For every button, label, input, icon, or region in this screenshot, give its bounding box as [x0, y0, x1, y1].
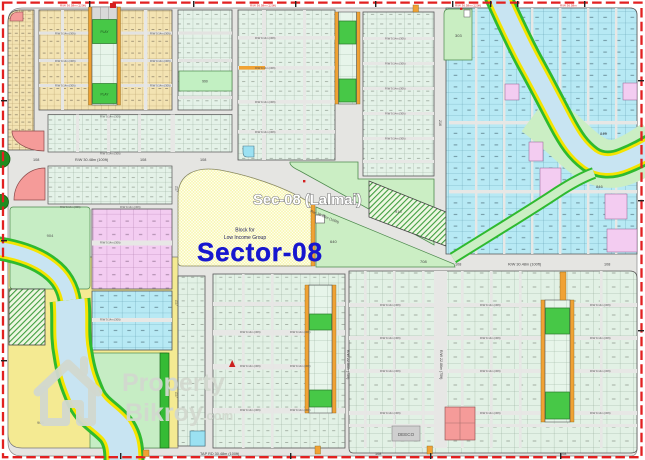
svg-text:R/W 9.14m (30ft): R/W 9.14m (30ft) [480, 303, 501, 307]
svg-text:108: 108 [375, 452, 381, 456]
svg-text:108: 108 [200, 158, 206, 162]
svg-text:R/W 9.14m (30ft): R/W 9.14m (30ft) [385, 112, 406, 116]
svg-text:R/W 9.14m (30ft): R/W 9.14m (30ft) [290, 364, 311, 368]
svg-text:R/W 9.14m (30ft): R/W 9.14m (30ft) [55, 59, 76, 63]
svg-text:708: 708 [420, 259, 427, 264]
svg-text:R/W 9.14m (30ft): R/W 9.14m (30ft) [290, 408, 311, 412]
svg-text:108: 108 [140, 158, 146, 162]
svg-text:R/W 9.14m (30ft): R/W 9.14m (30ft) [255, 100, 276, 104]
svg-text:R/W 9.14m (30ft): R/W 9.14m (30ft) [240, 330, 261, 334]
svg-text:R/W 36.58m (120ft): R/W 36.58m (120ft) [455, 4, 481, 8]
svg-text:217: 217 [175, 186, 179, 192]
svg-text:Property: Property [122, 369, 225, 397]
svg-text:R/W 22.86m (75ft): R/W 22.86m (75ft) [346, 350, 350, 379]
svg-text:Block for: Block for [235, 228, 255, 234]
svg-text:R/W 9.14m (30ft): R/W 9.14m (30ft) [385, 137, 406, 141]
svg-text:R/W 9.14m (30ft): R/W 9.14m (30ft) [385, 87, 406, 91]
svg-text:303: 303 [455, 33, 462, 38]
svg-text:R/W 9.14m (30ft): R/W 9.14m (30ft) [240, 408, 261, 412]
svg-text:R/W 9.14m (30ft): R/W 9.14m (30ft) [380, 411, 401, 415]
svg-text:R/W 9.14m (30ft): R/W 9.14m (30ft) [380, 303, 401, 307]
svg-text:R/W 9.14m (30ft): R/W 9.14m (30ft) [255, 130, 276, 134]
svg-text:R/W 9.14m (30ft): R/W 9.14m (30ft) [120, 205, 141, 209]
svg-text:R/W 9.14m (30ft): R/W 9.14m (30ft) [100, 152, 121, 156]
svg-text:R/W 9.14m (30ft): R/W 9.14m (30ft) [150, 59, 171, 63]
svg-text:R/W 9.14m (30ft): R/W 9.14m (30ft) [255, 36, 276, 40]
svg-text:R/W 9.14m (30ft): R/W 9.14m (30ft) [255, 66, 276, 70]
svg-text:R/W 9.14m (30ft): R/W 9.14m (30ft) [100, 241, 121, 245]
svg-text:R/W 9.14m (30ft): R/W 9.14m (30ft) [55, 31, 76, 35]
svg-text:R/W 9.14m (30ft): R/W 9.14m (30ft) [150, 31, 171, 35]
svg-text:845: 845 [600, 131, 607, 136]
svg-text:108: 108 [604, 263, 610, 267]
svg-text:846: 846 [596, 184, 603, 189]
svg-text:217: 217 [175, 300, 179, 306]
svg-text:R/W 22.86m (75ft): R/W 22.86m (75ft) [439, 350, 443, 379]
svg-text:R/W 9.14m (30ft): R/W 9.14m (30ft) [240, 364, 261, 368]
svg-text:904: 904 [47, 233, 54, 238]
svg-text:R/W 36.58m: R/W 36.58m [560, 4, 577, 8]
svg-text:R/W 9.14m (30ft): R/W 9.14m (30ft) [150, 84, 171, 88]
svg-text:R/W 9.14m (30ft): R/W 9.14m (30ft) [380, 336, 401, 340]
svg-text:R/W 9.14m (30ft): R/W 9.14m (30ft) [290, 330, 311, 334]
svg-text:108: 108 [33, 158, 39, 162]
svg-text:216: 216 [438, 120, 442, 126]
svg-text:990: 990 [202, 80, 208, 84]
svg-text:R/W 9.14m (30ft): R/W 9.14m (30ft) [100, 115, 121, 119]
svg-text:R/W 9.14m (30ft): R/W 9.14m (30ft) [60, 205, 81, 209]
svg-text:R/W 9.14m (30ft): R/W 9.14m (30ft) [380, 369, 401, 373]
svg-text:R/W 30.48m (100ft): R/W 30.48m (100ft) [508, 263, 542, 267]
svg-text:108: 108 [455, 263, 461, 267]
svg-text:640: 640 [330, 239, 337, 244]
svg-text:R/W 9.14m (30ft): R/W 9.14m (30ft) [480, 369, 501, 373]
svg-text:R/W 9.14m (30ft): R/W 9.14m (30ft) [590, 303, 611, 307]
svg-text:R/W 9.14m (30ft): R/W 9.14m (30ft) [385, 62, 406, 66]
svg-text:R/W 9.14m (30ft): R/W 9.14m (30ft) [590, 336, 611, 340]
svg-text:DEECO: DEECO [398, 432, 415, 437]
svg-text:R/W 9.14m (30ft): R/W 9.14m (30ft) [480, 336, 501, 340]
svg-text:R/W 9.14m (30ft): R/W 9.14m (30ft) [55, 84, 76, 88]
svg-text:R/W 9.14m (30ft): R/W 9.14m (30ft) [100, 318, 121, 322]
svg-text:R/W 9.14m (30ft): R/W 9.14m (30ft) [590, 369, 611, 373]
svg-text:PLAY: PLAY [101, 30, 110, 34]
svg-text:PLAY: PLAY [101, 93, 110, 97]
svg-text:R/W 9.14m (30ft): R/W 9.14m (30ft) [385, 37, 406, 41]
svg-text:R/W 9.14m (30ft): R/W 9.14m (30ft) [480, 411, 501, 415]
svg-text:R/W 36.58m (120ft): R/W 36.58m (120ft) [250, 4, 276, 8]
svg-text:R/W 30.48m (100ft): R/W 30.48m (100ft) [75, 158, 109, 162]
svg-text:TAP RD 30.48m (100ft): TAP RD 30.48m (100ft) [200, 452, 240, 456]
svg-text:Sector-08: Sector-08 [197, 237, 323, 267]
svg-text:910: 910 [395, 209, 402, 214]
svg-text:R/W 9.14m (30ft): R/W 9.14m (30ft) [590, 411, 611, 415]
svg-text:R/W 36.58m (120ft): R/W 36.58m (120ft) [60, 4, 86, 8]
svg-text:Sec-08 (Lalmai): Sec-08 (Lalmai) [253, 193, 362, 209]
